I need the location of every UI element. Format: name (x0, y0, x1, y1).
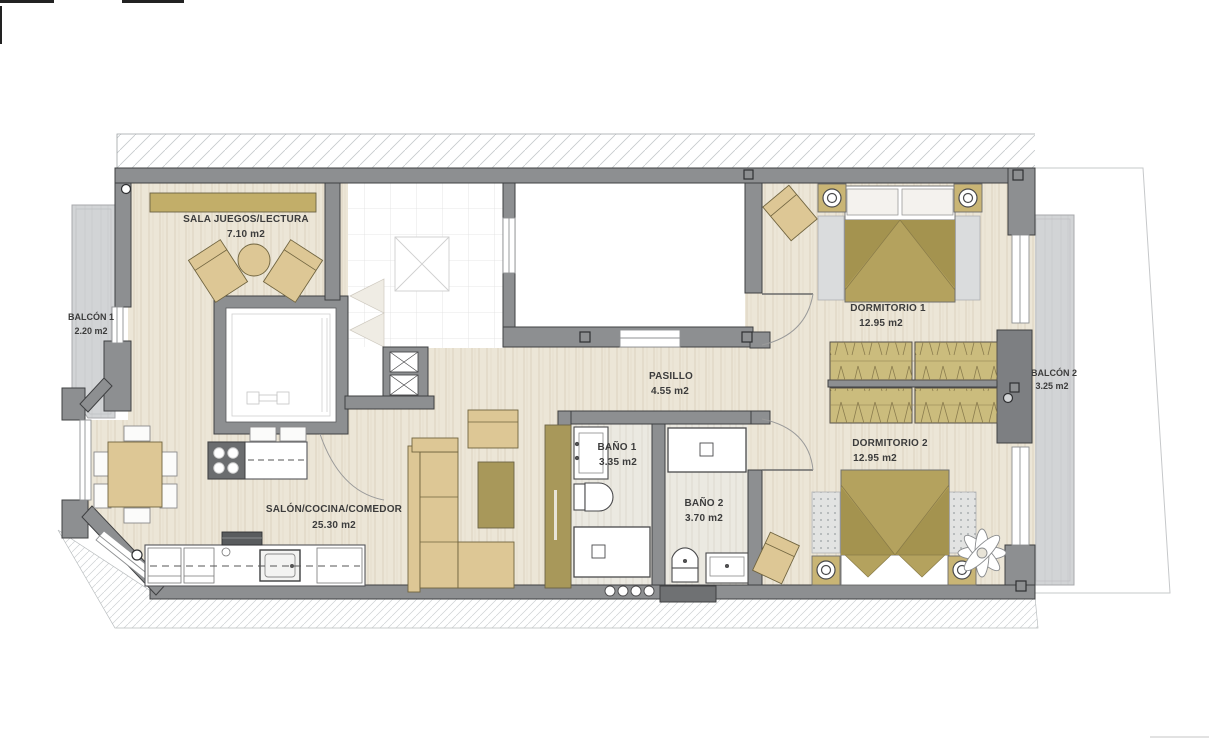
cooktop (208, 442, 245, 479)
roof-hatch-top (117, 134, 1035, 168)
label-balcon2-name: BALCÓN 2 (1031, 367, 1077, 378)
sofa-seat-bottom (458, 542, 514, 588)
floor-plan-page: SALA JUEGOS/LECTURA 7.10 m2 BALCÓN 1 2.2… (0, 0, 1209, 744)
sofa-seat-left (420, 452, 458, 588)
label-sala-area: 7.10 m2 (227, 229, 265, 240)
label-bano2-area: 3.70 m2 (685, 513, 723, 524)
label-pasillo-name: PASILLO (649, 371, 693, 382)
unlabeled-white-room (513, 183, 745, 327)
sofa-back (408, 446, 420, 592)
label-balcon2-area: 3.25 m2 (1035, 381, 1068, 391)
label-balcon1-name: BALCÓN 1 (68, 311, 114, 322)
elevator-room (214, 296, 348, 434)
floor-plan-drawing: SALA JUEGOS/LECTURA 7.10 m2 BALCÓN 1 2.2… (0, 0, 1209, 744)
balcony-2-floor (1032, 215, 1074, 585)
label-balcon1-area: 2.20 m2 (74, 326, 107, 336)
sala-sideboard (150, 193, 316, 212)
label-salon-area: 25.30 m2 (312, 520, 356, 531)
label-bano1-name: BAÑO 1 (598, 440, 637, 453)
label-dorm1-name: DORMITORIO 1 (850, 303, 926, 314)
coffee-table (478, 462, 514, 528)
bath-1-shower (574, 527, 650, 577)
tall-sideboard (545, 425, 571, 588)
label-dorm1-area: 12.95 m2 (859, 318, 903, 329)
dorm2-rug-left (812, 492, 840, 553)
kitchen-hood (222, 532, 262, 545)
label-bano1-area: 3.35 m2 (599, 457, 637, 468)
dorm1-rug-right (954, 216, 980, 300)
salon-armchair (468, 410, 518, 448)
dorm1-rug-left (818, 216, 844, 300)
label-bano2-name: BAÑO 2 (685, 496, 724, 509)
stair-landing (348, 347, 383, 396)
dining-table (108, 442, 162, 507)
label-pasillo-area: 4.55 m2 (651, 386, 689, 397)
plant (958, 529, 1006, 577)
label-sala-name: SALA JUEGOS/LECTURA (183, 214, 309, 225)
sala-round-table (238, 244, 270, 276)
label-dorm2-name: DORMITORIO 2 (852, 438, 928, 449)
sofa-cushion-top (412, 438, 458, 452)
label-salon-name: SALÓN/COCINA/COMEDOR (266, 502, 403, 515)
label-dorm2-area: 12.95 m2 (853, 453, 897, 464)
stairwell (348, 183, 503, 348)
